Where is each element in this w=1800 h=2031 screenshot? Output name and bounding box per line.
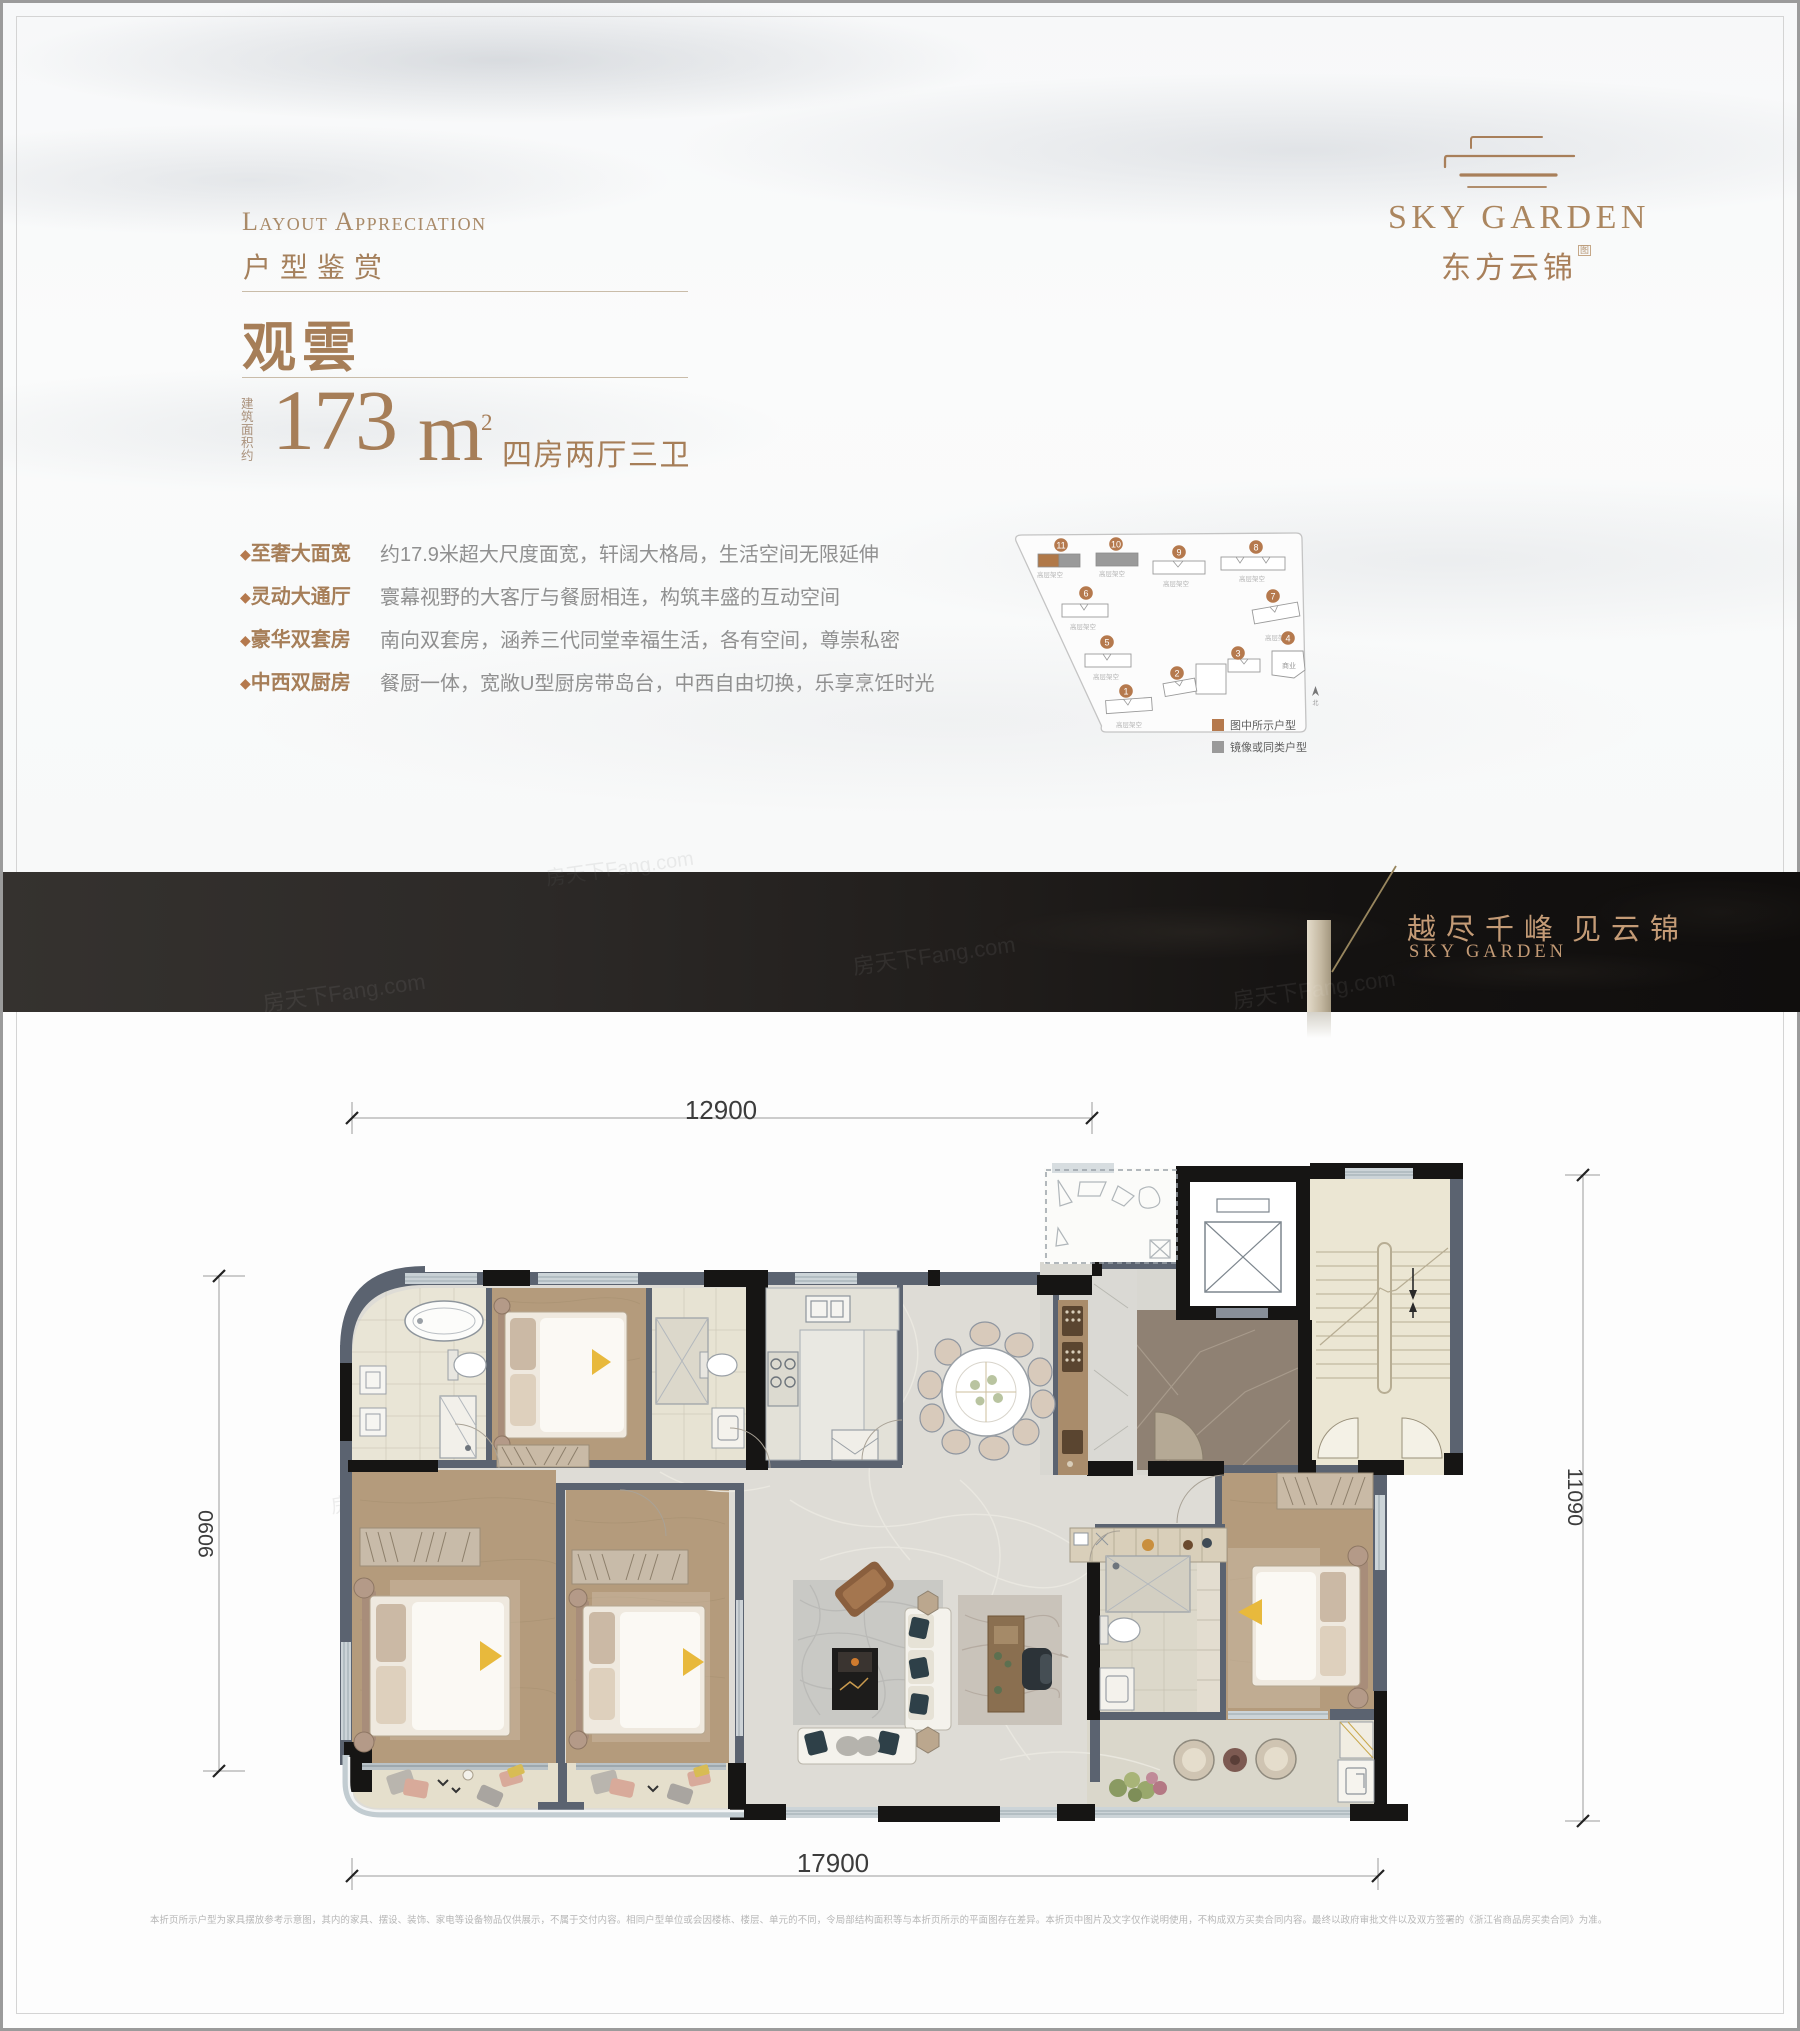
svg-text:高层架空: 高层架空 [1116, 720, 1143, 729]
svg-text:高层架空: 高层架空 [1037, 570, 1064, 579]
svg-text:7: 7 [1270, 592, 1275, 602]
svg-text:1: 1 [1123, 687, 1128, 697]
svg-text:3: 3 [1235, 649, 1240, 659]
svg-text:11: 11 [1056, 541, 1065, 551]
svg-text:高层架空: 高层架空 [1163, 579, 1190, 588]
svg-text:商业: 商业 [1282, 661, 1296, 670]
svg-text:图中所示户型: 图中所示户型 [1230, 718, 1296, 732]
svg-text:高层架空: 高层架空 [1239, 574, 1266, 583]
svg-text:高层架空: 高层架空 [1099, 569, 1126, 578]
svg-text:5: 5 [1104, 638, 1109, 648]
svg-text:镜像或同类户型: 镜像或同类户型 [1230, 740, 1307, 754]
svg-text:高层架空: 高层架空 [1093, 672, 1120, 681]
svg-text:9090: 9090 [194, 1510, 218, 1558]
svg-text:17900: 17900 [797, 1848, 869, 1878]
svg-text:8: 8 [1253, 543, 1258, 553]
svg-text:高层架空: 高层架空 [1070, 622, 1097, 631]
svg-text:2: 2 [1174, 669, 1179, 679]
svg-text:11090: 11090 [1563, 1468, 1587, 1526]
svg-text:10: 10 [1111, 540, 1121, 550]
svg-text:6: 6 [1083, 589, 1088, 599]
svg-text:9: 9 [1176, 548, 1181, 558]
svg-text:4: 4 [1285, 634, 1290, 644]
svg-text:北: 北 [1312, 699, 1318, 707]
svg-text:12900: 12900 [685, 1095, 757, 1125]
